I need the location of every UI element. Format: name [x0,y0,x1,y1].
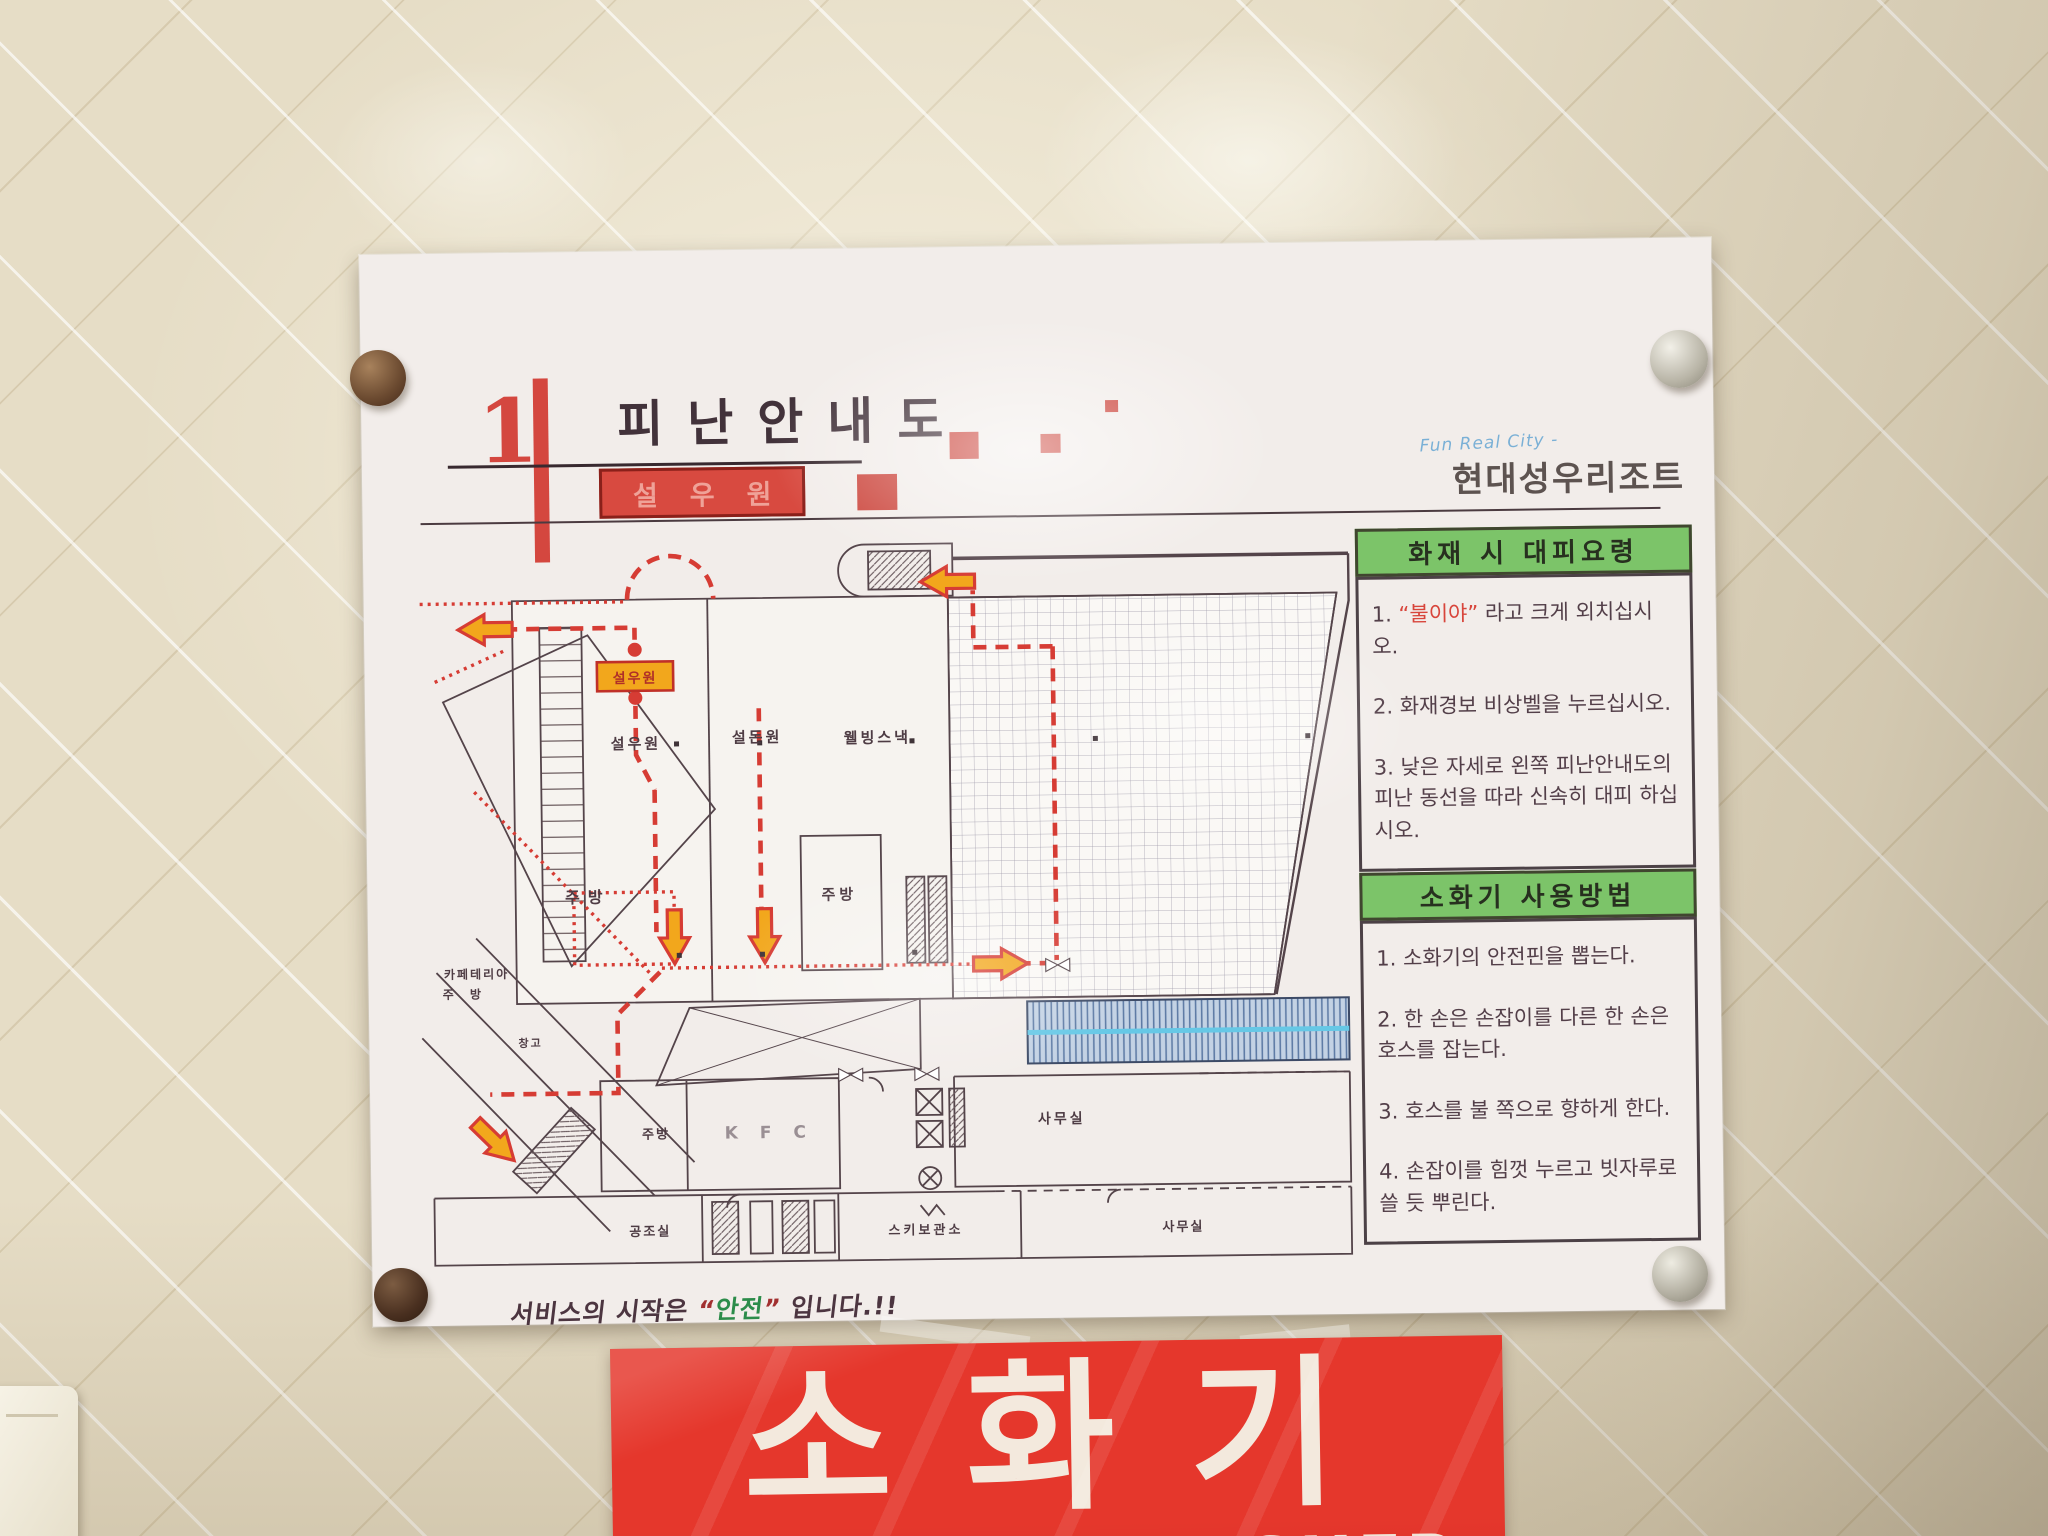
instruction-item: 3. 낮은 자세로 왼쪽 피난안내도의 피난 동선을 따라 신속히 대피 하십시… [1374,748,1680,846]
instruction-item: 4. 손잡이를 힘껏 누르고 빗자루로 쓸 듯 뿌린다. [1379,1153,1685,1220]
magnet-pin [350,350,406,406]
panel-body: 1. “불이야” 라고 크게 외치십시오. 2. 화재경보 비상벨을 누르십시오… [1355,572,1696,871]
magnet-pin [1652,1246,1708,1302]
safety-word: 안전 [714,1294,765,1324]
sign-korean-text: 소화기 [610,1351,1504,1527]
shout-fire-text: “불이야” [1398,601,1478,626]
magnet-pin [1650,330,1708,388]
room-label: 사무실 [1162,1219,1204,1236]
room-label: 공조실 [629,1224,671,1241]
fire-extinguisher-sign: 소화기 FIRE EXTINGUISHER [610,1335,1506,1536]
location-badge: 설우원 [599,466,806,519]
room-label: 주방 [821,885,857,903]
instruction-item: 2. 화재경보 비상벨을 누르십시오. [1373,688,1678,723]
evacuation-poster: 1 피난안내도 설우원 Fun Real City - 현대성우리조트 [359,237,1725,1327]
room-label: 사무실 [1038,1111,1086,1128]
sign-english-text: FIRE EXTINGUISHER [613,1521,1506,1536]
safety-slogan: 서비스의 시작은 “안전” 입니다.!! [509,1286,901,1331]
svg-text:설우원: 설우원 [613,671,658,688]
you-are-here-badge: 설우원 [597,661,674,691]
room-label: 설우원 [611,735,662,754]
poster-title: 피난안내도 [617,395,968,450]
resort-logo: 현대성우리조트 [1452,450,1686,502]
plan-walls [416,538,1357,1266]
deco-square [857,474,897,511]
instruction-item: 1. 소화기의 안전핀을 뽑는다. [1376,940,1681,975]
deco-square [1040,434,1060,453]
covered-walkway [1027,997,1349,1063]
instruction-item: 2. 한 손은 손잡이를 다른 한 손은 호스를 잡는다. [1377,1000,1683,1067]
panel-header: 소화기 사용방법 [1359,868,1697,920]
deco-square [1105,400,1118,412]
room-label: K F C [725,1122,814,1143]
red-divider-bar [533,378,550,562]
room-label: 스키보관소 [888,1222,963,1239]
floor-number: 1 [477,387,539,476]
magnet-pin [374,1268,428,1322]
extinguisher-usage-panel: 소화기 사용방법 1. 소화기의 안전핀을 뽑는다. 2. 한 손은 손잡이를 … [1359,868,1701,1244]
room-label: 주방 [565,888,611,908]
floor-plan: 설우원 설우원 설돈원 웰빙스낵 주방 주방 [411,530,1373,1284]
instruction-item: 1. “불이야” 라고 크게 외치십시오. [1372,596,1678,663]
photo-scene: 1 피난안내도 설우원 Fun Real City - 현대성우리조트 [0,0,2048,1536]
wall-switch-box [0,1386,78,1536]
wall-glare [330,60,630,260]
room-label: 카페테리아 [444,966,509,982]
room-label: 창고 [518,1036,542,1050]
room-label: 주방 [642,1126,670,1142]
panel-body: 1. 소화기의 안전핀을 뽑는다. 2. 한 손은 손잡이를 다른 한 손은 호… [1360,916,1701,1244]
room-label: 웰빙스낵 [844,728,912,747]
fire-evacuation-panel: 화재 시 대피요령 1. “불이야” 라고 크게 외치십시오. 2. 화재경보 … [1355,524,1696,871]
panel-header: 화재 시 대피요령 [1355,524,1693,576]
deco-square [949,432,978,459]
instruction-item: 3. 호스를 불 쪽으로 향하게 한다. [1378,1092,1683,1127]
room-label: 주 방 [443,986,488,1002]
room-label: 설돈원 [732,728,783,747]
